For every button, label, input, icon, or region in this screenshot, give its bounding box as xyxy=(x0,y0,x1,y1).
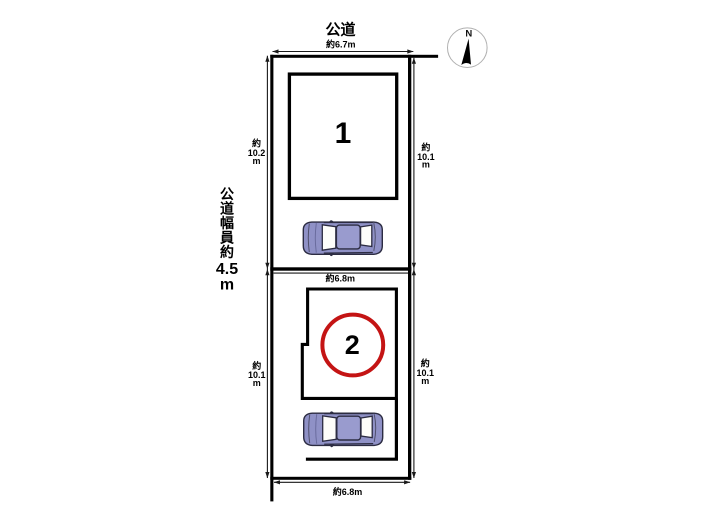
svg-text:4.5: 4.5 xyxy=(216,261,238,278)
svg-text:m: m xyxy=(421,376,429,386)
svg-text:m: m xyxy=(422,160,430,170)
svg-text:約6.7m: 約6.7m xyxy=(326,39,356,50)
svg-text:N: N xyxy=(465,28,472,39)
svg-text:m: m xyxy=(220,277,234,294)
svg-text:1: 1 xyxy=(335,117,352,150)
svg-text:2: 2 xyxy=(345,330,360,360)
svg-text:m: m xyxy=(252,156,260,166)
svg-text:m: m xyxy=(253,378,261,388)
svg-text:約: 約 xyxy=(252,137,261,148)
svg-text:約: 約 xyxy=(220,244,234,260)
svg-text:約: 約 xyxy=(421,357,430,368)
svg-text:公道: 公道 xyxy=(325,21,355,39)
svg-text:約6.8m: 約6.8m xyxy=(325,273,355,284)
svg-text:約6.8m: 約6.8m xyxy=(333,486,363,497)
